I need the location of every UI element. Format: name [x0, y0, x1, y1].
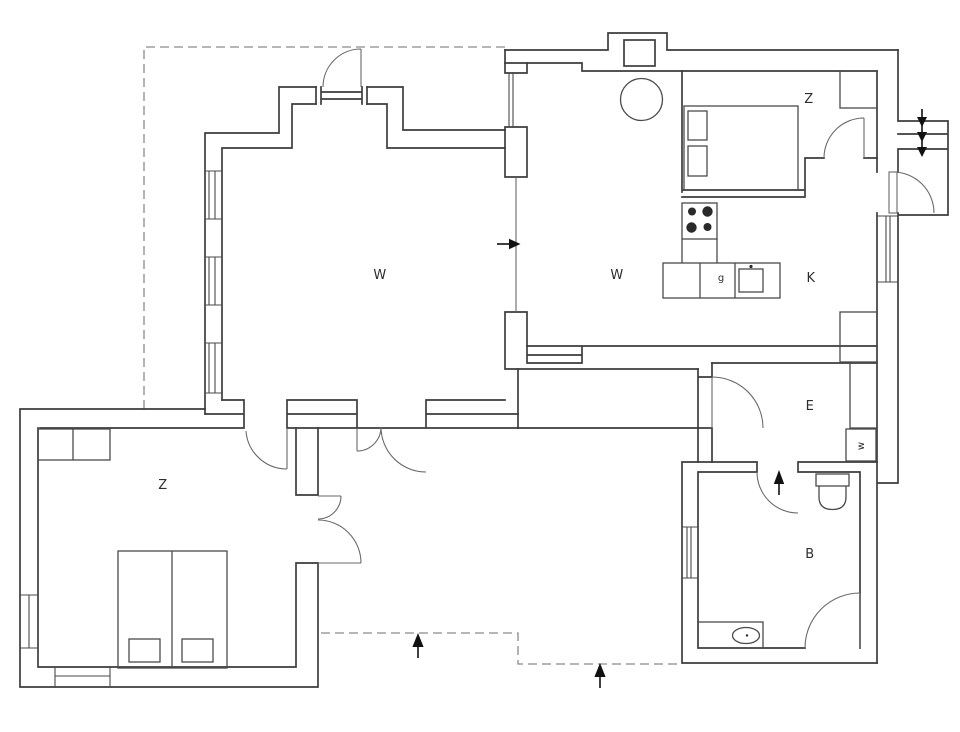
burner: [686, 222, 696, 232]
windows: [20, 73, 898, 687]
window-bedroom-sw-south: [55, 667, 110, 687]
double-bed-northeast: [684, 106, 798, 190]
room-labels: W W Z Z K E B g w: [158, 92, 867, 562]
window-bathroom-west: [682, 527, 698, 578]
window-living-west-1: [205, 171, 222, 219]
door-living-to-terrace-double: [357, 427, 426, 472]
boundary-south: [321, 633, 681, 664]
label-living-dining-east: W: [610, 268, 623, 283]
wall-living-south: [40, 400, 518, 428]
wall-bay-door-jambs: [316, 87, 367, 104]
fixtures: [38, 71, 877, 668]
door-living-to-bedroom-sw: [246, 428, 287, 469]
door-main-entry-leaf: [889, 172, 897, 213]
closet-entrance-hall: [850, 363, 877, 428]
wall-east: [877, 50, 948, 663]
wall-bedroom-sw: [20, 409, 318, 687]
arrow-up-terrace-west-entry: [412, 633, 423, 658]
window-living-west-3: [205, 343, 222, 393]
arrow-down-entry-stairs-3: [917, 139, 927, 157]
doors: [246, 49, 934, 648]
terrace-boundary: [144, 47, 681, 664]
label-living-room-west: W: [373, 268, 386, 283]
pillow: [129, 639, 160, 662]
window-kitchen-east: [877, 216, 898, 282]
pillow: [688, 111, 707, 140]
wardrobe-bedroom-ne: [840, 71, 877, 108]
kitchen-sink: [739, 269, 763, 292]
window-living-west-2: [205, 257, 222, 305]
wall-bedroom-ne: [682, 71, 877, 197]
label-kitchen: K: [806, 271, 815, 286]
arrow-up-hall-to-bathroom: [774, 470, 784, 495]
door-main-entry-arc: [893, 172, 934, 213]
label-entrance-hall: E: [806, 399, 815, 414]
door-main-entry-porch: [889, 172, 934, 213]
arrow-right-living-passage: [497, 239, 521, 249]
chimney: [624, 40, 655, 66]
window-hall-west: [509, 73, 513, 127]
double-bed-southwest: [118, 551, 227, 668]
wall-entrance-west: [698, 363, 712, 462]
toilet: [816, 474, 849, 510]
wall-living-inner: [222, 104, 505, 400]
boundary-west-north: [144, 47, 505, 409]
door-bathroom-southeast: [805, 593, 860, 648]
burner: [702, 206, 712, 216]
stove-with-burners: [682, 203, 717, 263]
door-bay-north: [323, 49, 361, 87]
burner: [704, 223, 712, 231]
wall-north: [505, 33, 898, 71]
label-bedroom-northeast: Z: [804, 92, 813, 107]
arrow-up-terrace-east-entry: [594, 663, 605, 688]
label-kitchen-counter: g: [718, 273, 724, 284]
closet-bedroom-sw: [38, 429, 110, 460]
label-washing-machine: w: [856, 442, 867, 450]
label-bedroom-southwest: Z: [158, 478, 167, 493]
walls: [20, 33, 948, 687]
fridge-box: [840, 312, 877, 362]
door-corridor-to-entrance-hall: [712, 377, 763, 428]
pillow: [182, 639, 213, 662]
door-bedroom-ne: [824, 118, 864, 158]
door-bedroom-sw-double: [318, 496, 361, 563]
washbasin-counter: [698, 622, 763, 648]
round-table: [621, 79, 663, 121]
basin-dot: [746, 634, 748, 636]
label-bathroom: B: [805, 547, 814, 562]
wall-living-outer: [205, 87, 505, 414]
window-bedroom-sw-west: [20, 595, 38, 648]
floor-plan-drawing: W W Z Z K E B g w: [0, 0, 960, 732]
tap-dot: [749, 265, 752, 268]
floor-plan-page: W W Z Z K E B g w: [0, 0, 960, 732]
burner: [688, 208, 696, 216]
pillow: [688, 146, 707, 176]
